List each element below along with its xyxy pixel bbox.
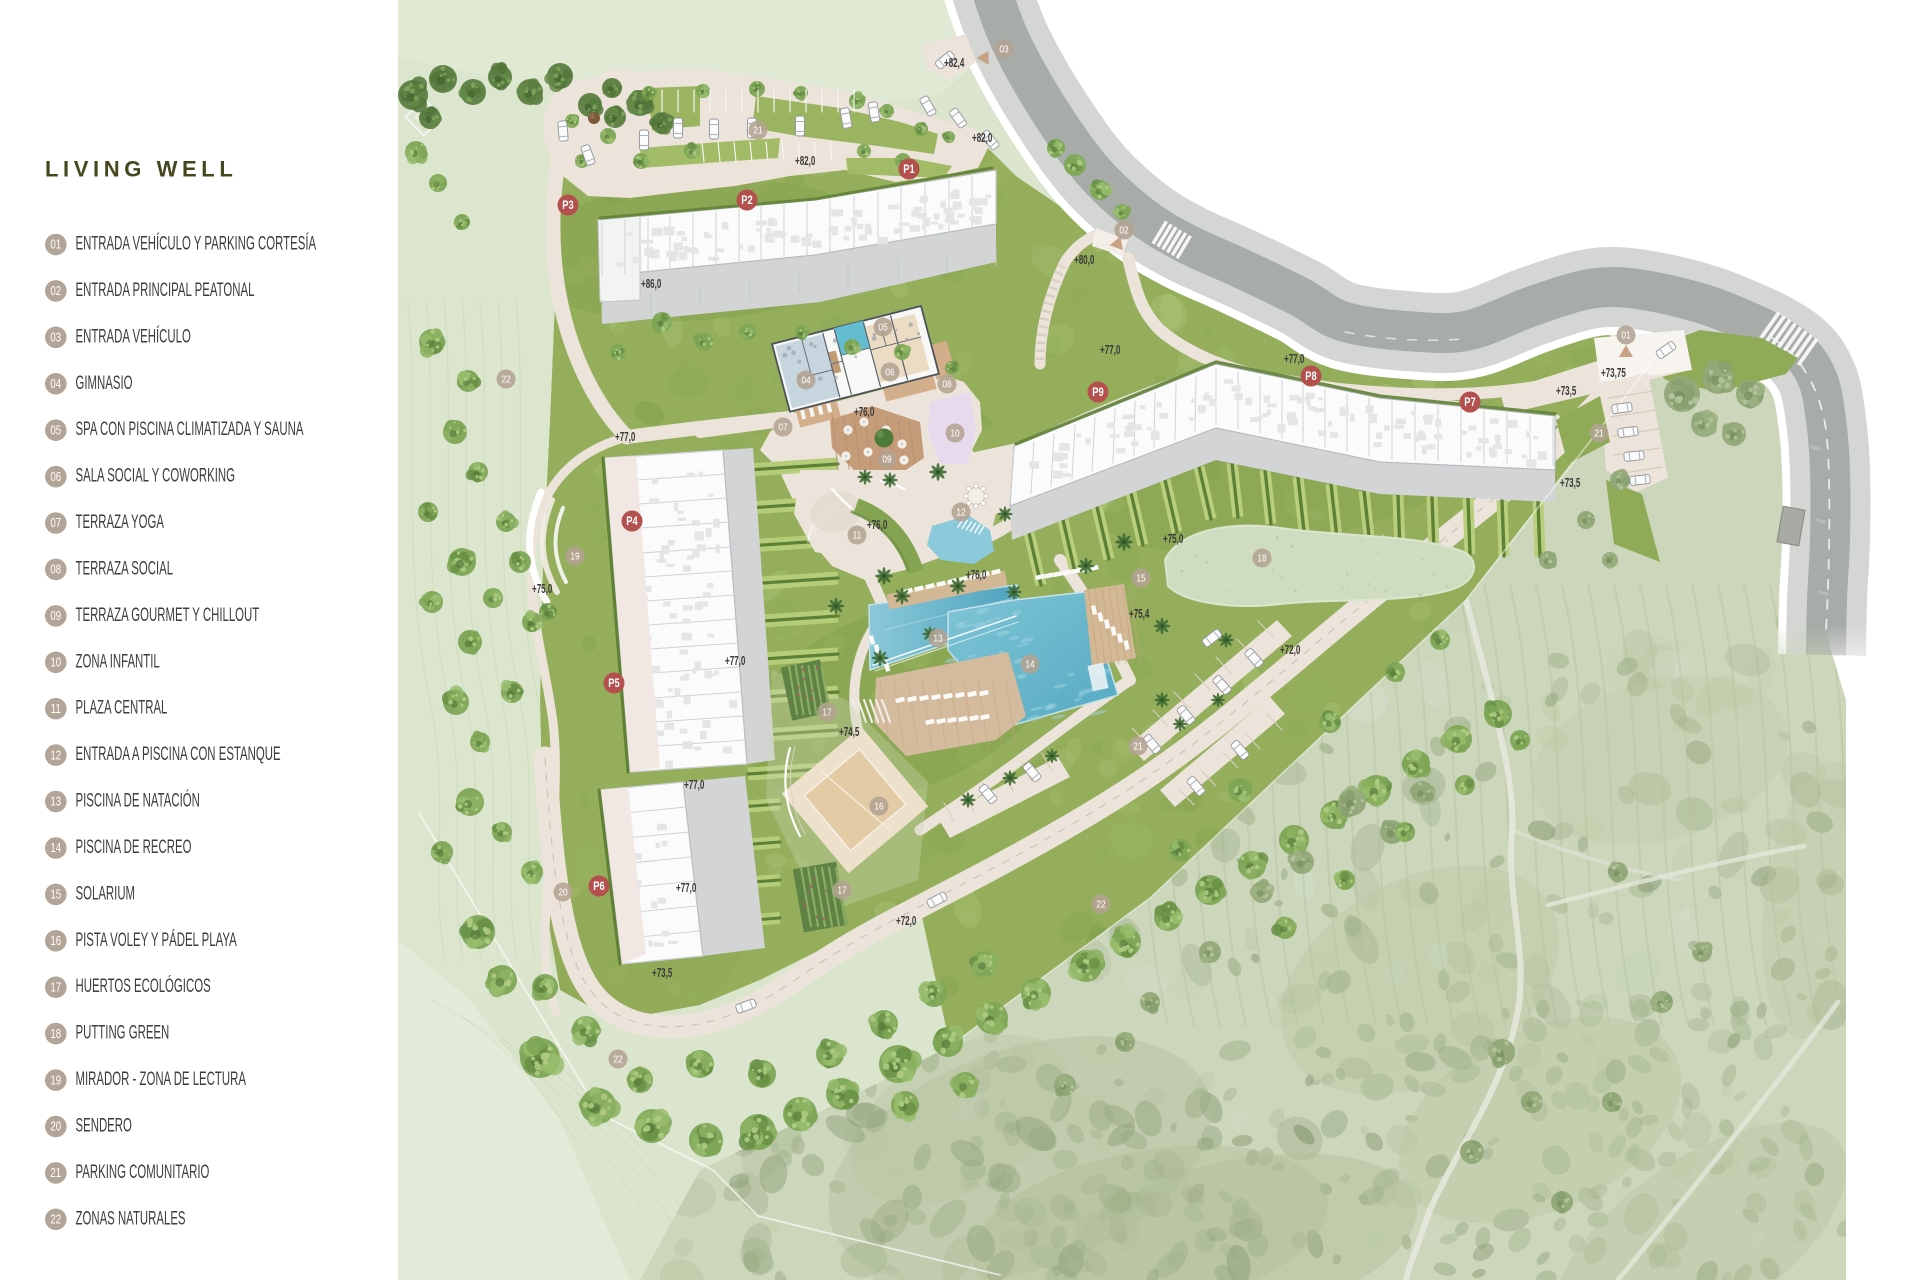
svg-text:12: 12 (50, 749, 61, 762)
svg-text:+77,0: +77,0 (1284, 352, 1304, 366)
svg-text:18: 18 (50, 1028, 61, 1041)
svg-text:04: 04 (801, 375, 810, 387)
svg-text:21: 21 (50, 1167, 61, 1180)
svg-text:TERRAZA SOCIAL: TERRAZA SOCIAL (76, 559, 174, 580)
svg-text:+77,0: +77,0 (684, 778, 704, 792)
svg-text:18: 18 (1257, 553, 1266, 565)
svg-text:01: 01 (50, 239, 61, 252)
svg-text:22: 22 (501, 374, 510, 386)
svg-text:ENTRADA VEHÍCULO: ENTRADA VEHÍCULO (76, 324, 191, 347)
svg-text:+73,5: +73,5 (1560, 476, 1580, 490)
svg-text:15: 15 (1136, 573, 1145, 585)
svg-text:PARKING COMUNITARIO: PARKING COMUNITARIO (76, 1162, 210, 1183)
svg-text:20: 20 (558, 887, 567, 899)
svg-text:19: 19 (570, 551, 579, 563)
svg-text:SENDERO: SENDERO (76, 1116, 132, 1137)
svg-text:+72,0: +72,0 (1280, 643, 1300, 657)
svg-text:ZONAS NATURALES: ZONAS NATURALES (76, 1208, 186, 1229)
svg-text:+73,75: +73,75 (1601, 366, 1626, 380)
svg-text:+77,0: +77,0 (725, 654, 745, 668)
svg-text:+73,5: +73,5 (652, 966, 672, 980)
svg-text:P6: P6 (593, 880, 604, 893)
svg-text:SALA SOCIAL Y COWORKING: SALA SOCIAL Y COWORKING (76, 466, 235, 487)
svg-text:+82,0: +82,0 (972, 131, 992, 145)
svg-text:+82,4: +82,4 (944, 56, 964, 70)
svg-text:21: 21 (1133, 741, 1142, 753)
svg-text:22: 22 (613, 1054, 622, 1066)
svg-text:TERRAZA GOURMET Y CHILLOUT: TERRAZA GOURMET Y CHILLOUT (76, 605, 260, 626)
svg-text:02: 02 (50, 285, 61, 298)
svg-text:10: 10 (950, 428, 959, 440)
svg-text:P8: P8 (1305, 370, 1316, 383)
svg-text:13: 13 (50, 796, 61, 809)
svg-text:01: 01 (1621, 330, 1630, 342)
svg-text:GIMNASIO: GIMNASIO (76, 373, 133, 394)
svg-text:17: 17 (822, 707, 831, 719)
svg-text:08: 08 (942, 379, 951, 391)
svg-text:14: 14 (1025, 659, 1034, 671)
svg-text:P9: P9 (1092, 386, 1103, 399)
svg-text:21: 21 (753, 125, 762, 137)
svg-text:PUTTING GREEN: PUTTING GREEN (76, 1023, 170, 1044)
svg-text:P3: P3 (562, 199, 573, 212)
svg-text:14: 14 (50, 842, 61, 855)
svg-text:11: 11 (853, 530, 862, 542)
svg-text:10: 10 (50, 656, 61, 669)
svg-text:LIVING WELL: LIVING WELL (45, 157, 237, 182)
svg-text:+76,0: +76,0 (966, 568, 986, 582)
svg-text:07: 07 (50, 517, 61, 530)
svg-text:PISTA VOLEY Y PÁDEL PLAYA: PISTA VOLEY Y PÁDEL PLAYA (76, 927, 237, 950)
svg-text:06: 06 (885, 367, 894, 379)
svg-text:+80,0: +80,0 (1074, 253, 1094, 267)
svg-text:+73,5: +73,5 (1556, 384, 1576, 398)
svg-text:+82,0: +82,0 (795, 154, 815, 168)
svg-text:08: 08 (50, 564, 61, 577)
svg-text:P1: P1 (903, 163, 914, 176)
svg-text:15: 15 (50, 889, 61, 902)
svg-text:+76,0: +76,0 (867, 518, 887, 532)
svg-text:06: 06 (50, 471, 61, 484)
svg-text:+77,0: +77,0 (676, 881, 696, 895)
svg-text:SPA CON PISCINA CLIMATIZADA Y: SPA CON PISCINA CLIMATIZADA Y SAUNA (76, 419, 304, 440)
svg-text:09: 09 (882, 454, 891, 466)
svg-text:05: 05 (878, 322, 887, 334)
svg-text:PISCINA DE NATACIÓN: PISCINA DE NATACIÓN (76, 788, 200, 811)
svg-text:21: 21 (1594, 428, 1603, 440)
svg-text:+75,0: +75,0 (532, 582, 552, 596)
svg-text:02: 02 (1119, 225, 1128, 237)
svg-text:TERRAZA YOGA: TERRAZA YOGA (76, 512, 165, 533)
svg-text:P5: P5 (608, 677, 619, 690)
svg-text:ZONA INFANTIL: ZONA INFANTIL (76, 651, 160, 672)
svg-text:HUERTOS ECOLÓGICOS: HUERTOS ECOLÓGICOS (76, 974, 211, 997)
svg-text:12: 12 (956, 507, 965, 519)
svg-text:+76,0: +76,0 (854, 405, 874, 419)
svg-text:16: 16 (50, 935, 61, 948)
svg-text:20: 20 (50, 1121, 61, 1134)
svg-text:SOLARIUM: SOLARIUM (76, 884, 136, 905)
svg-text:MIRADOR - ZONA DE LECTURA: MIRADOR - ZONA DE LECTURA (76, 1069, 247, 1090)
svg-text:PLAZA CENTRAL: PLAZA CENTRAL (76, 698, 168, 719)
svg-text:16: 16 (874, 801, 883, 813)
svg-text:+77,0: +77,0 (1100, 343, 1120, 357)
svg-text:+72,0: +72,0 (896, 914, 916, 928)
svg-text:ENTRADA A PISCINA CON ESTANQUE: ENTRADA A PISCINA CON ESTANQUE (76, 744, 281, 765)
svg-text:P7: P7 (1464, 396, 1475, 409)
svg-text:19: 19 (50, 1074, 61, 1087)
svg-text:22: 22 (1096, 899, 1105, 911)
svg-text:ENTRADA VEHÍCULO Y PARKING COR: ENTRADA VEHÍCULO Y PARKING CORTESÍA (76, 231, 317, 254)
svg-text:05: 05 (50, 424, 61, 437)
svg-text:22: 22 (50, 1213, 61, 1226)
svg-text:13: 13 (933, 633, 942, 645)
svg-text:17: 17 (837, 885, 846, 897)
svg-text:03: 03 (999, 44, 1008, 56)
svg-text:+86,0: +86,0 (641, 277, 661, 291)
svg-text:+75,4: +75,4 (1129, 607, 1149, 621)
svg-text:07: 07 (778, 422, 787, 434)
svg-text:P2: P2 (741, 194, 752, 207)
svg-text:03: 03 (50, 331, 61, 344)
svg-text:+75,0: +75,0 (1163, 532, 1183, 546)
svg-text:P4: P4 (626, 515, 637, 528)
svg-text:+74,5: +74,5 (839, 725, 859, 739)
svg-text:PISCINA DE RECREO: PISCINA DE RECREO (76, 837, 192, 858)
svg-text:+77,0: +77,0 (615, 430, 635, 444)
svg-text:04: 04 (50, 378, 61, 391)
svg-text:11: 11 (51, 703, 61, 716)
svg-text:ENTRADA PRINCIPAL PEATONAL: ENTRADA PRINCIPAL PEATONAL (76, 280, 255, 301)
svg-text:17: 17 (50, 981, 61, 994)
svg-text:09: 09 (50, 610, 61, 623)
